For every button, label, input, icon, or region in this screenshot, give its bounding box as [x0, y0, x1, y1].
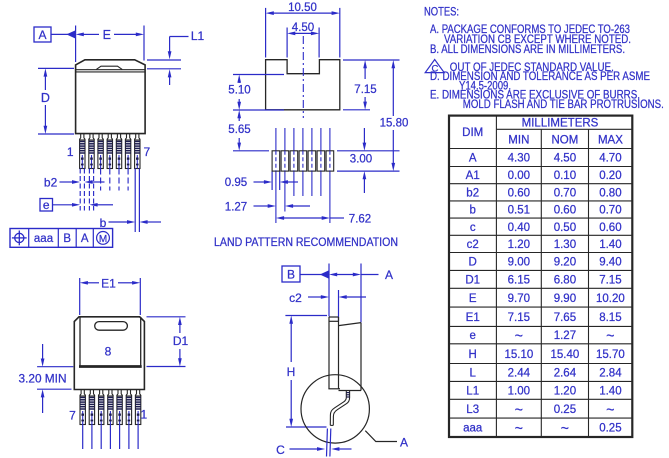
- svg-text:b: b: [469, 205, 475, 217]
- svg-text:E1: E1: [466, 312, 480, 324]
- svg-text:10.50: 10.50: [288, 2, 317, 14]
- svg-text:8: 8: [105, 345, 112, 359]
- svg-text:15.40: 15.40: [551, 349, 580, 361]
- svg-text:7.15: 7.15: [599, 274, 621, 286]
- svg-text:15.70: 15.70: [596, 349, 625, 361]
- svg-text:L1: L1: [466, 385, 479, 397]
- svg-text:0.60: 0.60: [554, 205, 576, 217]
- svg-text:6.80: 6.80: [554, 274, 576, 286]
- svg-text:E: E: [469, 293, 477, 305]
- svg-text:10.20: 10.20: [596, 293, 625, 305]
- svg-text:7: 7: [69, 409, 76, 423]
- svg-text:MAX: MAX: [598, 134, 623, 146]
- svg-text:c2: c2: [467, 239, 479, 251]
- svg-text:15.80: 15.80: [380, 118, 409, 130]
- svg-text:8.15: 8.15: [599, 312, 621, 324]
- svg-text:0.95: 0.95: [225, 177, 247, 189]
- svg-text:A: A: [81, 233, 89, 245]
- svg-text:L: L: [469, 368, 476, 380]
- svg-text:7.15: 7.15: [508, 312, 530, 324]
- svg-text:MILLIMETERS: MILLIMETERS: [522, 118, 599, 130]
- svg-text:1.27: 1.27: [554, 330, 576, 342]
- svg-text:L1: L1: [191, 29, 205, 43]
- svg-text:7.15: 7.15: [354, 84, 376, 96]
- svg-text:6.15: 6.15: [508, 274, 530, 286]
- svg-text:3.20 MIN: 3.20 MIN: [19, 373, 67, 385]
- svg-text:0.70: 0.70: [599, 205, 621, 217]
- svg-text:5.10: 5.10: [228, 85, 250, 97]
- svg-text:9.40: 9.40: [599, 257, 621, 269]
- svg-text:D: D: [469, 257, 477, 269]
- svg-text:1: 1: [140, 408, 147, 422]
- svg-text:2.64: 2.64: [554, 368, 577, 380]
- svg-text:b2: b2: [44, 175, 58, 189]
- svg-text:0.80: 0.80: [599, 187, 621, 199]
- svg-text:DIM: DIM: [462, 127, 483, 139]
- svg-text:4.50: 4.50: [554, 153, 576, 165]
- svg-text:0.25: 0.25: [554, 404, 576, 416]
- svg-text:3.00: 3.00: [350, 153, 372, 165]
- svg-text:A: A: [385, 268, 393, 282]
- svg-text:B: B: [287, 268, 295, 282]
- svg-text:aaa: aaa: [463, 423, 483, 435]
- svg-text:c: c: [470, 222, 476, 234]
- svg-text:H: H: [287, 365, 296, 379]
- svg-text:0.51: 0.51: [508, 205, 530, 217]
- svg-text:A: A: [469, 153, 477, 165]
- svg-text:0.10: 0.10: [554, 170, 576, 182]
- svg-text:e: e: [469, 330, 475, 342]
- svg-text:A1: A1: [466, 170, 480, 182]
- svg-text:E1: E1: [101, 276, 116, 290]
- svg-text:LAND PATTERN RECOMMENDATION: LAND PATTERN RECOMMENDATION: [214, 237, 398, 249]
- svg-text:~: ~: [606, 401, 614, 417]
- svg-text:~: ~: [515, 420, 523, 436]
- svg-text:1.40: 1.40: [599, 385, 621, 397]
- svg-text:MOLD FLASH AND TIE BAR PROTRUS: MOLD FLASH AND TIE BAR PROTRUSIONS.: [463, 99, 664, 111]
- svg-text:4.30: 4.30: [508, 153, 530, 165]
- svg-text:15.10: 15.10: [504, 349, 533, 361]
- svg-text:aaa: aaa: [34, 233, 54, 245]
- svg-text:1.40: 1.40: [599, 239, 621, 251]
- svg-text:D1: D1: [173, 334, 189, 348]
- svg-text:L3: L3: [466, 404, 479, 416]
- svg-text:1.00: 1.00: [508, 385, 530, 397]
- svg-text:C: C: [276, 443, 285, 457]
- svg-text:b2: b2: [466, 187, 479, 199]
- svg-text:c2: c2: [289, 291, 302, 305]
- svg-text:9.00: 9.00: [508, 257, 530, 269]
- svg-text:0.20: 0.20: [599, 170, 621, 182]
- svg-text:M: M: [99, 234, 107, 245]
- svg-text:B. ALL DIMENSIONS ARE IN MILLI: B. ALL DIMENSIONS ARE IN MILLIMETERS.: [430, 44, 625, 56]
- svg-text:A: A: [400, 436, 408, 450]
- svg-text:0.60: 0.60: [599, 222, 621, 234]
- svg-text:2.44: 2.44: [508, 368, 531, 380]
- svg-text:D1: D1: [465, 274, 480, 286]
- svg-text:B: B: [63, 233, 71, 245]
- svg-text:0.00: 0.00: [508, 170, 530, 182]
- svg-text:0.60: 0.60: [508, 187, 530, 199]
- svg-text:NOTES:: NOTES:: [424, 7, 459, 19]
- svg-text:0.70: 0.70: [554, 187, 576, 199]
- svg-text:~: ~: [515, 401, 523, 417]
- svg-text:0.50: 0.50: [554, 222, 576, 234]
- svg-text:D: D: [41, 91, 50, 105]
- svg-text:NOM: NOM: [551, 134, 578, 146]
- svg-text:A: A: [38, 28, 46, 42]
- svg-text:1.27: 1.27: [225, 201, 247, 213]
- svg-text:MIN: MIN: [508, 134, 529, 146]
- svg-text:H: H: [469, 349, 477, 361]
- svg-text:~: ~: [515, 328, 523, 344]
- svg-text:1.30: 1.30: [554, 239, 576, 251]
- svg-text:9.90: 9.90: [554, 293, 576, 305]
- svg-text:7.65: 7.65: [554, 312, 576, 324]
- svg-text:9.70: 9.70: [508, 293, 530, 305]
- svg-text:2.84: 2.84: [599, 368, 622, 380]
- svg-text:e: e: [43, 198, 50, 212]
- svg-text:1.20: 1.20: [508, 239, 530, 251]
- svg-text:4.70: 4.70: [599, 153, 621, 165]
- svg-text:~: ~: [606, 328, 614, 344]
- svg-text:~: ~: [561, 420, 569, 436]
- svg-text:1: 1: [67, 145, 74, 159]
- svg-text:0.40: 0.40: [508, 222, 530, 234]
- svg-text:7: 7: [144, 145, 151, 159]
- svg-text:5.65: 5.65: [228, 124, 250, 136]
- svg-text:7.62: 7.62: [349, 213, 371, 225]
- svg-text:E: E: [103, 28, 111, 42]
- svg-text:1.20: 1.20: [554, 385, 576, 397]
- svg-text:0.25: 0.25: [599, 423, 621, 435]
- svg-text:9.20: 9.20: [554, 257, 576, 269]
